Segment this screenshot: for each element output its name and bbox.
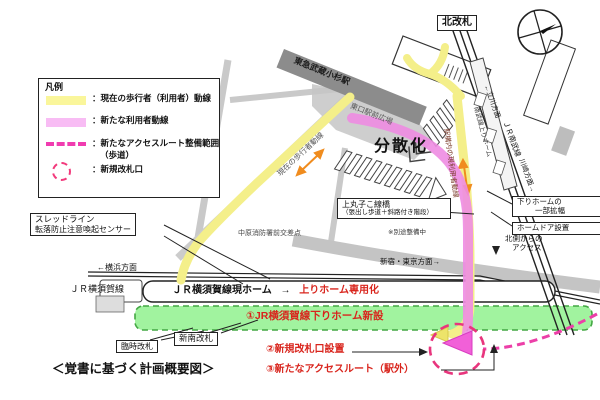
item2-label: ②新規改札口設置 <box>266 344 344 356</box>
new-south-gate-label: 新南改札 <box>174 332 218 346</box>
bridge-note: ※別途整備中 <box>388 229 426 236</box>
north-gate-label: 北改札 <box>437 15 477 31</box>
platform-name: ＪＲ横須賀線現ホーム <box>172 285 272 296</box>
item3-label: ③新たなアクセスルート（駅外） <box>266 364 414 376</box>
legend-item-current: ：現在の歩行者（利用者）動線 <box>92 94 211 104</box>
bridge-callout: 上丸子こ線橋 （張出し歩道＋斜路付き階段） <box>337 198 451 219</box>
platform-conversion: 上りホーム専用化 <box>299 285 379 296</box>
legend-swatch-yellow <box>46 96 86 105</box>
intersection-label: 中原消防署前交差点 <box>238 230 301 238</box>
north-access-label: 北側からの アクセス <box>505 235 543 252</box>
legend-item-access-2: （歩道） <box>100 151 134 161</box>
sensor-line1: スレッドライン <box>35 215 131 225</box>
platform-door-callout: ホームドア設置 <box>512 222 600 235</box>
legend-swatch-dashed <box>46 142 86 146</box>
shinjuku-direction: 新宿・東京方面→ <box>380 258 440 267</box>
widen-line2: 一部拡幅 <box>517 207 597 216</box>
legend-item-access: ：新たなアクセスルート整備範囲 <box>92 139 219 149</box>
legend-title: 凡例 <box>45 82 63 92</box>
temp-gate-label: 臨時改札 <box>116 340 158 353</box>
platform-widen-callout: 下りホームの 一部拡幅 <box>512 196 600 217</box>
new-platform-label: ①JR横須賀線下りホーム新設 <box>246 310 384 322</box>
compass-icon <box>518 10 562 54</box>
yokohama-direction: ←横浜方面 <box>97 263 137 272</box>
sensor-line2: 転落防止注意喚起センサー <box>35 225 131 234</box>
north-access-line2: アクセス <box>505 244 543 253</box>
station-plan-diagram: 凡例 ：現在の歩行者（利用者）動線 ：新たな利用者動線 ：新たなアクセスルート整… <box>0 0 600 400</box>
sensor-callout: スレッドライン 転落防止注意喚起センサー <box>30 213 136 236</box>
dispersal-label: 分散化 <box>374 138 428 156</box>
item2-arrowhead <box>419 348 428 356</box>
legend-item-new-user: ：新たな利用者動線 <box>92 116 169 126</box>
current-platform-label: ＪＲ横須賀線現ホーム → 上りホーム専用化 <box>172 285 379 297</box>
platform-arrow: → <box>274 285 296 296</box>
left-structure-2 <box>96 296 124 312</box>
legend-swatch-circle <box>52 162 71 181</box>
yokosuka-line-label: ＪＲ横須賀線 <box>70 284 124 294</box>
north-access-arrowhead <box>492 246 500 255</box>
caption: ＜覚書に基づく計画概要図＞ <box>52 362 215 376</box>
bridge-name: 上丸子こ線橋 <box>342 200 446 209</box>
legend-item-gate: ：新規改札口 <box>92 165 143 175</box>
legend-swatch-pink <box>46 118 86 127</box>
bridge-detail: （張出し歩道＋斜路付き階段） <box>342 209 446 216</box>
